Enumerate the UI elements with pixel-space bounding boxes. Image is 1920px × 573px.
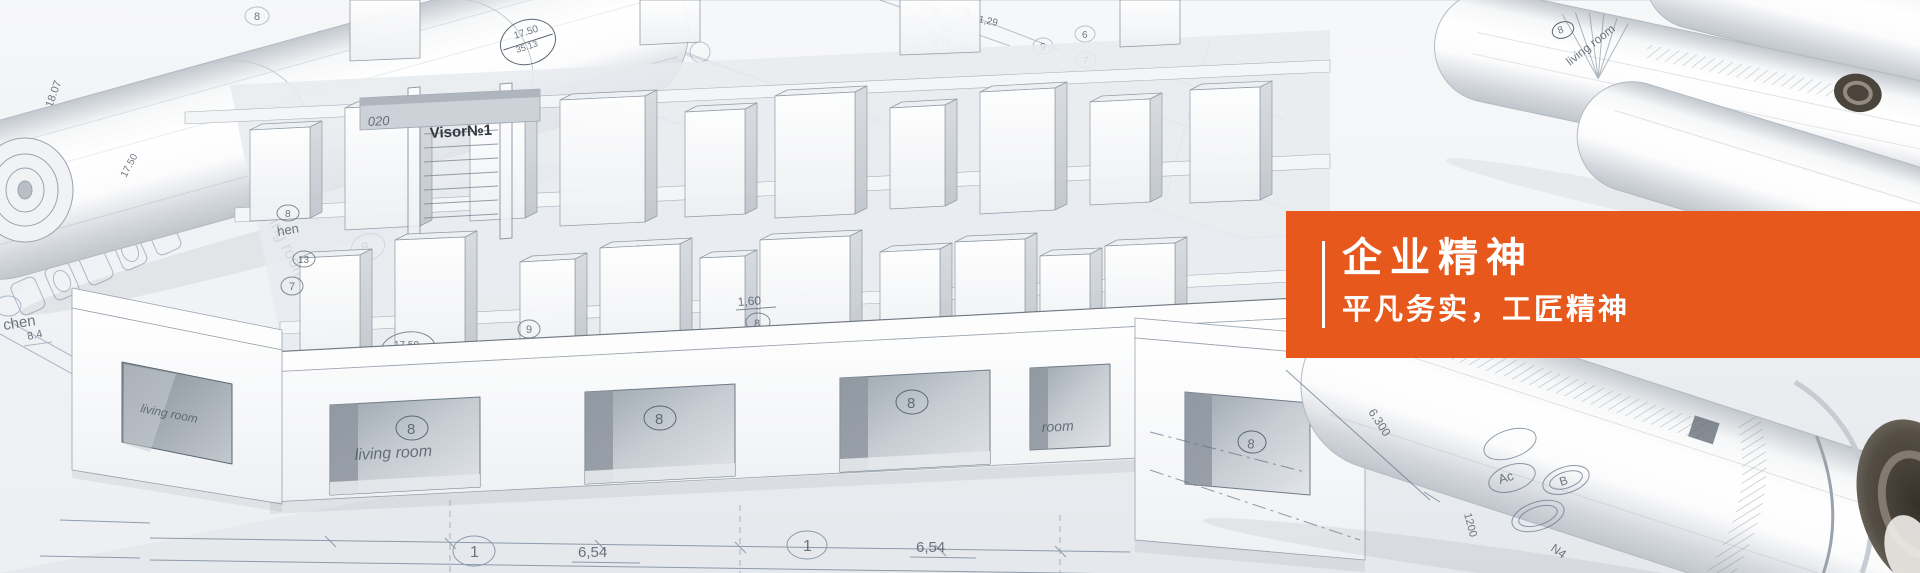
num-6-top: 6 xyxy=(1082,30,1088,41)
axis-num-1a: 1 xyxy=(470,544,479,561)
floor-dim-160: 1,60 xyxy=(737,293,762,309)
window2-num-8: 8 xyxy=(655,411,663,428)
window4-room: room xyxy=(1041,417,1074,435)
floor-num-7: 7 xyxy=(289,281,295,293)
floor-num-9: 9 xyxy=(526,324,532,336)
window1-num-8: 8 xyxy=(407,421,415,438)
slogan-panel: 企业精神 平凡务实，工匠精神 xyxy=(1286,211,1920,358)
visor-label: Visor№1 xyxy=(429,122,492,142)
right-window-num-8: 8 xyxy=(1247,436,1256,452)
floor-num-13: 13 xyxy=(298,255,310,266)
slogan-accent-line xyxy=(1322,241,1325,328)
num-8-top2: 8 xyxy=(254,11,260,23)
dim-654-a: 6,54 xyxy=(578,544,607,561)
axis-num-1b: 1 xyxy=(803,538,812,555)
visor-number: 020 xyxy=(367,113,390,129)
floor-num-8b: 8 xyxy=(285,209,291,220)
hero-banner: chen 1.25 8.4 18.07 way 17.50 35.13 8 1,… xyxy=(0,0,1920,573)
slogan-subtitle: 平凡务实，工匠精神 xyxy=(1342,293,1630,328)
dim-654-b: 6,54 xyxy=(916,539,945,556)
slogan-title: 企业精神 xyxy=(1342,235,1534,281)
window3-num-8: 8 xyxy=(907,395,915,412)
